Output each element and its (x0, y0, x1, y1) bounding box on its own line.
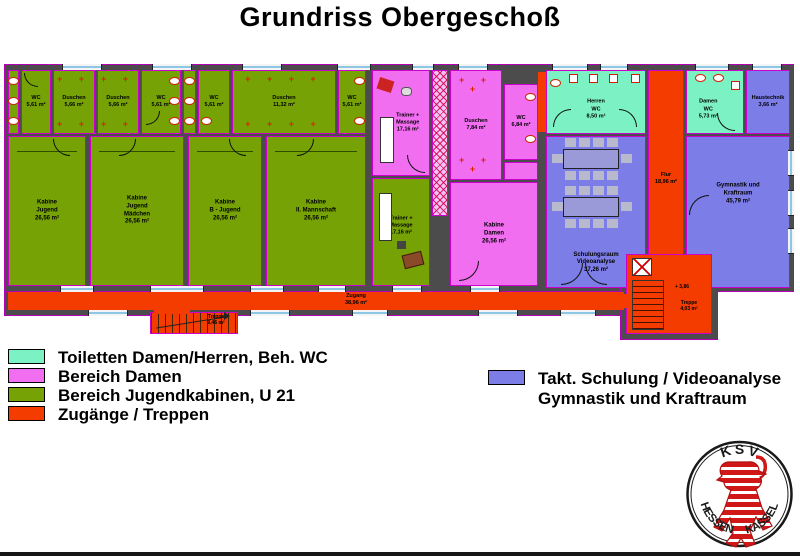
page-title: Grundriss Obergeschoß (0, 2, 800, 33)
hall-damen (504, 162, 538, 180)
toilet-icon (525, 93, 536, 101)
toilet-icon (184, 97, 195, 105)
toilet-icon (525, 135, 536, 143)
chair-icons (565, 171, 576, 180)
door-arc (229, 139, 246, 156)
window (552, 64, 588, 70)
shower-cross-icons: + + + (451, 76, 501, 94)
legend-swatch-jugend (8, 387, 45, 402)
sink-icon (731, 81, 740, 90)
toilet-icon (713, 74, 724, 82)
room-wc-jugend-4: WC 5,61 m² (338, 70, 366, 134)
window (560, 310, 596, 316)
room-damen-wc: Damen WC 5,73 m² (686, 70, 744, 134)
window (695, 64, 729, 70)
room-wc-jugend-3: WC 5,61 m² (198, 70, 230, 134)
window (752, 64, 782, 70)
ksv-hessen-kassel-logo: KSVHESSENKASSEL (682, 438, 797, 552)
urinal-icon (609, 74, 618, 83)
legend-swatch-toiletten (8, 349, 45, 364)
door-arc (53, 139, 70, 156)
room-label: Flur 18,96 m² (649, 172, 683, 186)
toilet-icon (201, 117, 212, 125)
door-arc (585, 263, 607, 285)
sink-icon (550, 79, 561, 87)
logo-letter: S (735, 441, 744, 457)
door-arc (561, 263, 583, 285)
shower-cross-icons: + + (98, 120, 138, 129)
room-label: Duschen 11,32 m² (233, 95, 335, 109)
toilet-icon (169, 97, 180, 105)
window (250, 310, 290, 316)
door-arc (146, 111, 160, 125)
toilet-icon (8, 97, 19, 105)
room-label: WC 5,61 m² (22, 95, 50, 109)
room-herren-wc: Herren WC 8,50 m² (546, 70, 646, 134)
window (600, 64, 628, 70)
room-wc-jugend-1: WC 5,61 m² (21, 70, 51, 134)
shower-cross-icons: + + (54, 120, 94, 129)
urinal-icon (589, 74, 598, 83)
door-arc (407, 155, 425, 173)
mat (377, 77, 395, 93)
room-label: WC 5,61 m² (199, 95, 229, 109)
window (337, 64, 371, 70)
shower-cross-icons: + + (54, 75, 94, 84)
room-label: Duschen 5,66 m² (98, 95, 138, 109)
room-label: WC 5,61 m² (339, 95, 365, 109)
chair (397, 241, 406, 249)
room-duschen-damen: + + + Duschen 7,84 m² + + + (450, 70, 502, 180)
room-haustechnik: Haustechnik 3,66 m² (746, 70, 790, 134)
legend-label: Zugänge / Treppen (58, 405, 209, 425)
window (62, 64, 102, 70)
door-arc (459, 261, 479, 281)
legend-label: Takt. Schulung / Videoanalyse (538, 369, 781, 389)
door-arc (24, 73, 38, 87)
toilet-icon (354, 117, 365, 125)
window (60, 286, 94, 292)
legend-swatch-schulung (488, 370, 525, 385)
legend-label: Toiletten Damen/Herren, Beh. WC (58, 348, 328, 368)
legend-swatch-zugaenge (8, 406, 45, 421)
room-duschen-gross: + + + + Duschen 11,32 m² + + + + (232, 70, 336, 134)
urinal-icon (631, 74, 640, 83)
door-arc (297, 139, 314, 156)
shower-cross-icons: + + + + (233, 120, 335, 129)
legend-label: Bereich Jugendkabinen, U 21 (58, 386, 295, 406)
window (788, 190, 794, 216)
massage-bench (380, 117, 394, 163)
desk (402, 251, 425, 269)
toilet-icon (169, 77, 180, 85)
room-kabine-jugend: Kabine Jugend 26,56 m² (8, 136, 86, 286)
room-label: WC 6,84 m² (505, 115, 537, 129)
level-annotation: + 3,86 (664, 284, 700, 290)
room-label: Kabine Damen 26,56 m² (451, 222, 537, 245)
window (250, 286, 284, 292)
toilet-icon (695, 74, 706, 82)
window (318, 286, 346, 292)
stair-left-label: Treppe 9,46 m² (196, 314, 236, 327)
window (478, 310, 518, 316)
toilet-icon (184, 77, 195, 85)
room-fixture-strip (183, 70, 196, 134)
room-label: Kabine B - Jugend 26,56 m² (189, 199, 261, 222)
room-duschen-jugend-1: + + Duschen 5,66 m² + + (53, 70, 95, 134)
room-label: Kabine II. Mannschaft 26,56 m² (267, 199, 365, 222)
window (352, 310, 388, 316)
room-kabine-damen: Kabine Damen 26,56 m² (450, 182, 538, 286)
room-fixture-strip (8, 70, 19, 134)
room-kabine-b-jugend: Kabine B - Jugend 26,56 m² (188, 136, 262, 286)
toilet-icon (169, 117, 180, 125)
door-arc (119, 139, 136, 156)
window (412, 64, 434, 70)
shower-cross-icons: + + + (451, 156, 501, 174)
bench-line (275, 151, 357, 152)
legend-swatch-damen (8, 368, 45, 383)
window (470, 286, 500, 292)
shaft-hatch (432, 70, 448, 216)
door-arc (717, 113, 735, 131)
toilet-icon (354, 77, 365, 85)
shower-cross-icons: + + + + (233, 75, 335, 84)
room-label: Duschen 5,66 m² (54, 95, 94, 109)
room-wc-damen-bereich: WC 6,84 m² (504, 84, 538, 160)
room-duschen-jugend-2: + + Duschen 5,66 m² + + (97, 70, 139, 134)
room-kabine-2-mannschaft: Kabine II. Mannschaft 26,56 m² (266, 136, 366, 286)
room-wc-jugend-2: WC 5,61 m² (141, 70, 181, 134)
stair-left-bridge (154, 308, 190, 314)
stair-right (632, 280, 664, 330)
window (150, 286, 204, 292)
toilet-icon (8, 117, 19, 125)
conference-table (563, 149, 619, 169)
room-label: Kabine Jugend Mädchen 26,56 m² (91, 195, 183, 226)
stair-right-label: Treppe 4,03 m² (668, 300, 710, 313)
annex-bridge (618, 294, 632, 308)
passage (538, 72, 546, 132)
room-label: Duschen 7,84 m² (451, 118, 501, 132)
room-label: Haustechnik 3,66 m² (747, 95, 789, 109)
window (242, 64, 282, 70)
lift-shaft (632, 258, 652, 276)
legend-label: Bereich Damen (58, 367, 182, 387)
toilet-icon (8, 77, 19, 85)
conference-table (563, 197, 619, 217)
window (788, 228, 794, 254)
urinal-icon (569, 74, 578, 83)
corridor-label: Zugang 38,96 m² (332, 293, 380, 307)
page-border (0, 552, 800, 556)
window (88, 310, 128, 316)
window (458, 64, 488, 70)
room-label: Kabine Jugend 26,56 m² (9, 199, 85, 222)
chair-icons (565, 219, 576, 228)
window (392, 286, 422, 292)
toilet-icon (184, 117, 195, 125)
shower-cross-icons: + + (98, 75, 138, 84)
corridor-zugang (8, 292, 624, 310)
window (152, 64, 192, 70)
legend-label: Gymnastik und Kraftraum (538, 389, 747, 409)
window (788, 150, 794, 176)
room-kabine-jugend-maedchen: Kabine Jugend Mädchen 26,56 m² (90, 136, 184, 286)
room-trainer-massage-1: Trainer + Massage 17,16 m² (372, 70, 430, 176)
room-trainer-massage-2: Trainer + Massage 17,16 m² (372, 178, 430, 286)
stool (401, 87, 412, 96)
bench-line (99, 151, 175, 152)
massage-bench (379, 193, 392, 241)
